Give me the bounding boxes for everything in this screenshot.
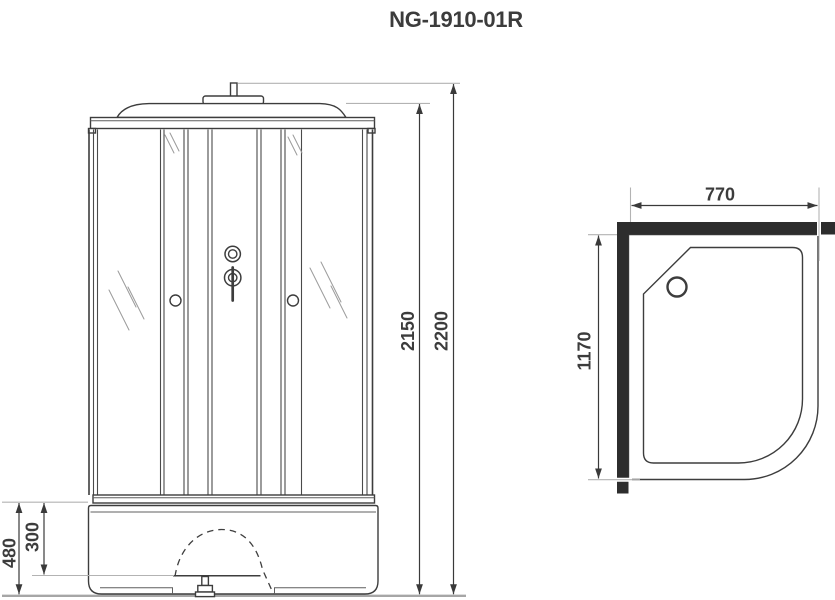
top-frame bbox=[89, 118, 376, 134]
top-view bbox=[617, 222, 835, 494]
front-view bbox=[89, 83, 379, 597]
door-handle-right bbox=[288, 295, 299, 306]
dim-width-label: 770 bbox=[705, 185, 735, 205]
shower-holder-ring bbox=[225, 246, 240, 261]
roof-dome bbox=[117, 104, 346, 118]
wall-bar-top bbox=[617, 222, 835, 235]
tray-outline-plan bbox=[629, 235, 819, 480]
dim-tray-inner-depth-label: 300 bbox=[23, 522, 43, 552]
dim-overall-height-label: 2200 bbox=[432, 311, 452, 351]
glass-mullions bbox=[89, 130, 373, 496]
door-handle-left bbox=[170, 295, 181, 306]
shower-tray-front bbox=[89, 506, 379, 597]
bottom-rail bbox=[93, 495, 375, 503]
drawing-page: NG-1910-01R bbox=[0, 0, 835, 600]
dim-tray-height-label: 480 bbox=[0, 538, 20, 568]
vent-pipe bbox=[231, 83, 238, 97]
wall-bar-left bbox=[617, 222, 629, 494]
glass-hatching bbox=[109, 133, 347, 330]
page-title: NG-1910-01R bbox=[389, 7, 523, 32]
shower-mixer bbox=[225, 246, 241, 300]
dim-cabin-height-label: 2150 bbox=[398, 311, 418, 351]
dim-depth-label: 1170 bbox=[575, 331, 595, 370]
technical-drawing: NG-1910-01R bbox=[0, 0, 835, 600]
